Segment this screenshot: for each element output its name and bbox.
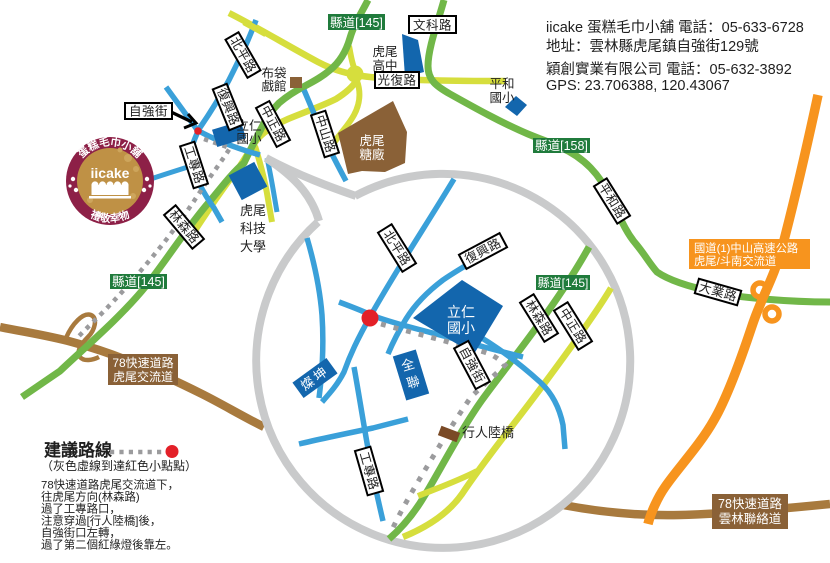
svg-text:縣道[145]: 縣道[145] [330, 16, 383, 30]
svg-text:高中: 高中 [372, 58, 397, 73]
svg-text:國小: 國小 [236, 132, 262, 146]
svg-text:縣道[145]: 縣道[145] [112, 275, 165, 289]
svg-text:文科路: 文科路 [413, 18, 452, 33]
svg-text:縣道[145]: 縣道[145] [538, 276, 589, 290]
svg-text:光復路: 光復路 [377, 73, 416, 88]
svg-text:過了工專路口，: 過了工專路口， [41, 502, 121, 516]
svg-text:布袋: 布袋 [261, 67, 287, 81]
svg-text:（灰色虛線到達紅色小點點）: （灰色虛線到達紅色小點點） [41, 458, 197, 473]
svg-text:iicake 蛋糕毛巾小舖 電話：05-633-6728: iicake 蛋糕毛巾小舖 電話：05-633-6728 [546, 18, 804, 36]
svg-text:平和: 平和 [489, 77, 514, 91]
svg-text:穎創實業有限公司 電話：05-632-3892: 穎創實業有限公司 電話：05-632-3892 [546, 60, 792, 78]
svg-text:78快速道路: 78快速道路 [112, 355, 173, 370]
svg-text:國小: 國小 [489, 91, 515, 105]
svg-text:虎尾/斗南交流道: 虎尾/斗南交流道 [694, 254, 776, 268]
svg-text:過了第二個紅綠燈後靠左。: 過了第二個紅綠燈後靠左。 [41, 538, 178, 552]
svg-text:iicake: iicake [91, 165, 130, 181]
svg-text:自強街: 自強街 [129, 105, 168, 119]
svg-text:GPS: 23.706388, 120.43067: GPS: 23.706388, 120.43067 [546, 78, 730, 94]
svg-text:虎尾: 虎尾 [240, 203, 266, 218]
svg-text:國道(1)中山高速公路: 國道(1)中山高速公路 [694, 241, 798, 255]
svg-text:注意穿過[行人陸橋]後，: 注意穿過[行人陸橋]後， [41, 514, 161, 528]
svg-text:雲林聯絡道: 雲林聯絡道 [719, 511, 782, 526]
svg-text:立仁: 立仁 [447, 304, 475, 320]
svg-text:大學: 大學 [240, 239, 266, 254]
svg-text:行人陸橋: 行人陸橋 [462, 425, 514, 440]
svg-text:78快速道路: 78快速道路 [718, 496, 782, 511]
svg-text:虎尾: 虎尾 [372, 45, 397, 59]
svg-text:虎尾: 虎尾 [359, 134, 384, 148]
svg-text:往虎尾方向(林森路): 往虎尾方向(林森路) [41, 490, 140, 504]
svg-text:地址：雲林縣虎尾鎮自強街129號: 地址：雲林縣虎尾鎮自強街129號 [546, 38, 759, 55]
svg-text:科技: 科技 [240, 221, 266, 236]
svg-text:78快速道路虎尾交流道下，: 78快速道路虎尾交流道下， [41, 478, 179, 492]
svg-text:建議路線: 建議路線 [44, 440, 112, 460]
svg-text:國小: 國小 [447, 320, 475, 336]
svg-text:虎尾交流道: 虎尾交流道 [113, 369, 173, 384]
svg-text:戲館: 戲館 [261, 79, 286, 94]
svg-text:自強街口左轉，: 自強街口左轉， [41, 526, 121, 540]
svg-text:縣道[158]: 縣道[158] [535, 139, 588, 153]
svg-text:糖廠: 糖廠 [359, 147, 385, 162]
